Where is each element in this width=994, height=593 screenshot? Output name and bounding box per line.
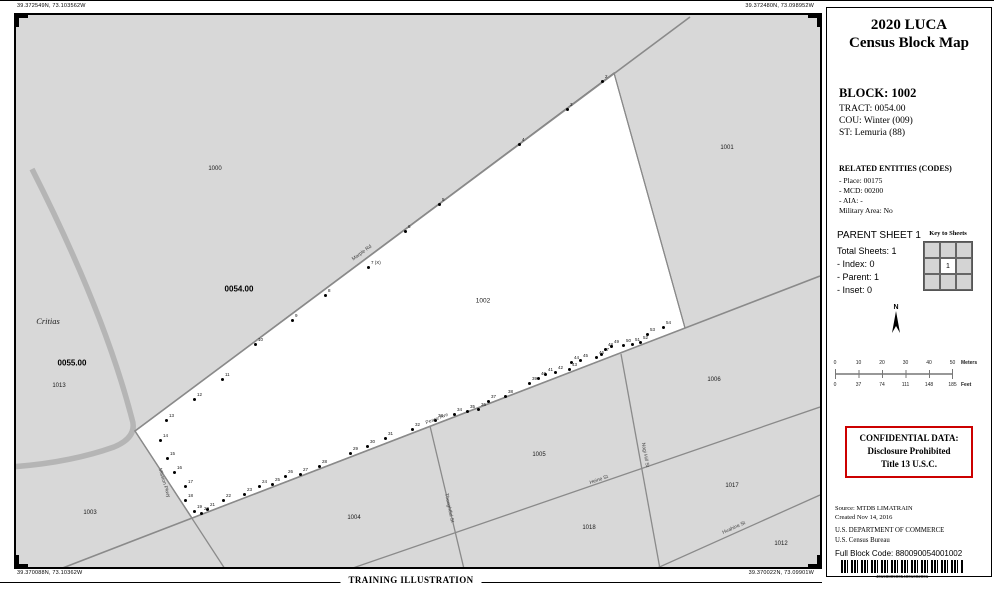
map-spot-label-38: 38 <box>508 389 513 394</box>
critias-stream <box>16 169 133 467</box>
map-spot-dot-31 <box>384 437 387 440</box>
map-spot-label-15: 15 <box>170 451 175 456</box>
map-spot-label-13: 13 <box>169 413 174 418</box>
block-label-1001: 1001 <box>720 145 733 151</box>
scale-tick-label: 20 <box>879 360 885 366</box>
department-line: U.S. DEPARTMENT OF COMMERCE <box>835 526 944 536</box>
map-spot-dot-45 <box>579 359 582 362</box>
map-spot-dot-14 <box>159 439 162 442</box>
sheet-count-item: - Parent: 1 <box>837 271 897 284</box>
related-entity-item: Military Area: No <box>839 206 893 216</box>
key-to-sheets-label: Key to Sheets <box>915 230 981 237</box>
map-spot-label-30: 30 <box>370 439 375 444</box>
block-label-1017: 1017 <box>725 483 738 489</box>
map-spot-dot-46 <box>595 356 598 359</box>
map-spot-label-28: 28 <box>322 459 327 464</box>
map-spot-dot-7 <box>367 266 370 269</box>
map-spot-label-11: 11 <box>225 372 230 377</box>
map-spot-label-43: 43 <box>572 362 577 367</box>
map-spot-label-41: 41 <box>548 367 553 372</box>
map-spot-dot-29 <box>349 452 352 455</box>
nagi-hill-st-line <box>621 354 660 567</box>
map-spot-dot-53 <box>646 333 649 336</box>
map-spot-label-10: 10 <box>258 337 263 342</box>
state-line: ST: Lemuria (88) <box>839 128 905 138</box>
map-spot-dot-5 <box>438 203 441 206</box>
map-spot-label-3: 3 <box>570 102 573 107</box>
scale-tick-label: 0 <box>834 382 837 388</box>
map-spot-dot-26 <box>284 475 287 478</box>
key-cell <box>924 258 940 274</box>
key-cell <box>956 274 972 290</box>
map-spot-label-50: 50 <box>626 338 631 343</box>
map-spot-label-36: 36 <box>481 402 486 407</box>
scale-meters-unit: Meters <box>961 360 977 366</box>
block-heading: BLOCK: 1002 <box>839 86 916 101</box>
north-label: N <box>882 304 910 311</box>
map-spot-label-24: 24 <box>262 479 267 484</box>
map-spot-label-8: 8 <box>328 288 331 293</box>
map-spot-dot-32 <box>411 428 414 431</box>
map-spot-dot-33 <box>434 419 437 422</box>
map-spot-label-9: 9 <box>295 313 298 318</box>
map-spot-dot-23 <box>243 493 246 496</box>
map-spot-dot-38 <box>504 395 507 398</box>
scale-tick-label: 111 <box>902 382 910 388</box>
sheet-count-item: - Index: 0 <box>837 258 897 271</box>
map-spot-label-2: 2 <box>605 74 608 79</box>
related-entity-item: - MCD: 00200 <box>839 186 893 196</box>
map-spot-dot-8 <box>324 294 327 297</box>
coordinate-bottom-left: 39.370088N, 73.10362W <box>17 570 82 576</box>
map-spot-dot-51 <box>631 343 634 346</box>
map-spot-dot-24 <box>258 485 261 488</box>
barcode <box>841 560 963 573</box>
key-cell <box>956 242 972 258</box>
map-spot-dot-6 <box>404 230 407 233</box>
related-entities-heading: RELATED ENTITIES (CODES) <box>839 164 952 173</box>
map-spot-dot-34 <box>453 413 456 416</box>
map-spot-dot-18 <box>184 499 187 502</box>
map-spot-label-33: 33 <box>438 413 443 418</box>
key-cell <box>940 274 956 290</box>
coordinate-top-right: 39.372480N, 73.098952W <box>745 3 814 9</box>
north-arrow: N <box>882 304 910 335</box>
map-spot-label-42: 42 <box>558 365 563 370</box>
north-arrow-icon <box>889 311 903 335</box>
scale-tick-label: 40 <box>926 360 932 366</box>
block-label-1003: 1003 <box>83 510 96 516</box>
map-canvas: 100010010054.001002Critias0055.001013100… <box>14 13 822 569</box>
map-spot-dot-2 <box>601 80 604 83</box>
county-line: COU: Winter (009) <box>839 116 913 126</box>
coordinate-bottom-right: 39.370022N, 73.09901W <box>749 570 814 576</box>
scale-tick-label: 0 <box>834 360 837 366</box>
map-spot-label-52: 52 <box>643 335 648 340</box>
block-label-1018: 1018 <box>582 525 595 531</box>
department-line: U.S. Census Bureau <box>835 536 944 546</box>
map-spot-dot-20 <box>200 512 203 515</box>
map-spot-label-27: 27 <box>303 467 308 472</box>
map-spot-dot-12 <box>193 398 196 401</box>
key-cell-current-sheet: 1 <box>940 258 956 274</box>
frame-bracket-icon <box>16 15 28 27</box>
map-spot-dot-50 <box>622 344 625 347</box>
scale-ticks <box>835 368 987 380</box>
source-line: Created Nov 14, 2016 <box>835 513 913 522</box>
map-geometry <box>16 15 820 567</box>
map-title: 2020 LUCA Census Block Map <box>827 16 991 53</box>
map-spot-dot-27 <box>299 473 302 476</box>
block-label-1006: 1006 <box>707 377 720 383</box>
map-spot-dot-54 <box>662 326 665 329</box>
block-label-1000: 1000 <box>208 166 221 172</box>
frame-bracket-icon <box>808 555 820 567</box>
frame-bracket-icon <box>808 15 820 27</box>
map-spot-label-34: 34 <box>457 407 462 412</box>
map-spot-dot-22 <box>222 499 225 502</box>
sheet-count-item: - Inset: 0 <box>837 284 897 297</box>
block-label-1005: 1005 <box>532 452 545 458</box>
confidential-line: Disclosure Prohibited <box>847 445 971 458</box>
map-spot-label-25: 25 <box>275 477 280 482</box>
scale-feet-unit: Feet <box>961 382 971 388</box>
scale-tick-label: 30 <box>903 360 909 366</box>
map-title-line2: Census Block Map <box>827 34 991 52</box>
key-cell <box>924 242 940 258</box>
census-block-map-page: 39.372549N, 73.103562W 39.372480N, 73.09… <box>0 0 994 593</box>
map-spot-dot-42 <box>554 371 557 374</box>
map-title-line1: 2020 LUCA <box>827 16 991 34</box>
key-to-sheets-grid: 1 <box>923 241 973 291</box>
related-entities-list: - Place: 00175- MCD: 00200- AIA: -Milita… <box>839 176 893 216</box>
map-spot-dot-10 <box>254 343 257 346</box>
map-spot-dot-52 <box>639 341 642 344</box>
block-label-1002: 1002 <box>476 298 490 305</box>
map-spot-label-26: 26 <box>288 469 293 474</box>
map-spot-label-53: 53 <box>650 327 655 332</box>
map-spot-label-6: 6 <box>408 224 411 229</box>
map-spot-dot-43 <box>568 368 571 371</box>
map-spot-dot-44 <box>570 361 573 364</box>
coordinate-top-left: 39.372549N, 73.103562W <box>17 3 86 9</box>
map-spot-dot-35 <box>466 410 469 413</box>
map-spot-dot-13 <box>165 419 168 422</box>
related-entity-item: - Place: 00175 <box>839 176 893 186</box>
confidential-line: CONFIDENTIAL DATA: <box>847 432 971 445</box>
water-label-critias: Critias <box>36 316 60 326</box>
map-spot-label-7: 7 (X) <box>371 260 381 265</box>
scale-tick-label: 185 <box>948 382 956 388</box>
map-spot-dot-41 <box>544 373 547 376</box>
tract-line: TRACT: 0054.00 <box>839 104 906 114</box>
map-spot-label-17: 17 <box>188 479 193 484</box>
map-spot-dot-30 <box>366 445 369 448</box>
key-cell <box>956 258 972 274</box>
map-spot-dot-28 <box>318 465 321 468</box>
related-entity-item: - AIA: - <box>839 196 893 206</box>
map-spot-dot-49 <box>610 345 613 348</box>
source-lines: Source: MTDB LIMATRAINCreated Nov 14, 20… <box>835 504 913 522</box>
map-spot-dot-9 <box>291 319 294 322</box>
training-illustration-label: TRAINING ILLUSTRATION <box>340 575 481 585</box>
map-spot-dot-39 <box>528 382 531 385</box>
map-spot-label-29: 29 <box>353 446 358 451</box>
scale-tick-label: 148 <box>925 382 933 388</box>
key-cell <box>924 274 940 290</box>
parent-sheet-heading: PARENT SHEET 1 <box>837 230 921 241</box>
map-spot-label-45: 45 <box>583 353 588 358</box>
sheet-counts-list: Total Sheets: 1- Index: 0- Parent: 1- In… <box>837 245 897 297</box>
source-line: Source: MTDB LIMATRAIN <box>835 504 913 513</box>
department-lines: U.S. DEPARTMENT OF COMMERCEU.S. Census B… <box>835 526 944 546</box>
map-spot-label-21: 21 <box>210 502 215 507</box>
map-spot-dot-3 <box>566 108 569 111</box>
block-label-1004: 1004 <box>347 515 360 521</box>
confidential-line: Title 13 U.S.C. <box>847 458 971 471</box>
map-spot-label-31: 31 <box>388 431 393 436</box>
block-label-0055-00: 0055.00 <box>58 359 87 368</box>
map-spot-dot-36 <box>477 408 480 411</box>
map-spot-label-19: 19 <box>197 504 202 509</box>
map-spot-label-35: 35 <box>470 404 475 409</box>
map-spot-label-12: 12 <box>197 392 202 397</box>
map-spot-label-4: 4 <box>522 137 525 142</box>
map-spot-label-22: 22 <box>226 493 231 498</box>
block-label-1013: 1013 <box>52 383 65 389</box>
map-spot-dot-19 <box>193 510 196 513</box>
scale-tick-label: 50 <box>950 360 956 366</box>
map-spot-dot-47 <box>600 353 603 356</box>
barcode-number: 401988090054001002001 <box>841 574 963 579</box>
map-spot-label-18: 18 <box>188 493 193 498</box>
confidential-notice: CONFIDENTIAL DATA:Disclosure ProhibitedT… <box>845 426 973 478</box>
scale-tick-label: 37 <box>856 382 862 388</box>
key-cell <box>940 242 956 258</box>
map-spot-dot-15 <box>166 457 169 460</box>
map-spot-dot-17 <box>184 485 187 488</box>
full-block-code: Full Block Code: 880090054001002 <box>835 549 962 558</box>
map-spot-dot-21 <box>206 508 209 511</box>
map-spot-label-54: 54 <box>666 320 671 325</box>
frame-bracket-icon <box>16 555 28 567</box>
block-label-1012: 1012 <box>774 541 787 547</box>
heine-st-line <box>350 407 820 567</box>
block-1002-polygon <box>135 73 685 518</box>
map-spot-label-32: 32 <box>415 422 420 427</box>
map-spot-dot-48 <box>604 348 607 351</box>
map-spot-label-16: 16 <box>177 465 182 470</box>
map-spot-label-23: 23 <box>247 487 252 492</box>
scale-bar: 01020304050Meters 03774111148185Feet <box>835 360 987 394</box>
map-spot-dot-16 <box>173 471 176 474</box>
scale-tick-label: 74 <box>879 382 885 388</box>
map-spot-label-49: 49 <box>614 339 619 344</box>
huahine-st-line <box>655 495 820 567</box>
scale-tick-label: 10 <box>856 360 862 366</box>
block-label-0054-00: 0054.00 <box>225 285 254 294</box>
map-spot-dot-25 <box>271 483 274 486</box>
map-spot-dot-40 <box>537 377 540 380</box>
map-spot-label-14: 14 <box>163 433 168 438</box>
map-legend-sidebar: 2020 LUCA Census Block Map BLOCK: 1002 T… <box>826 7 992 577</box>
map-spot-dot-37 <box>487 400 490 403</box>
map-spot-dot-11 <box>221 378 224 381</box>
map-spot-label-5: 5 <box>442 197 445 202</box>
sheet-count-item: Total Sheets: 1 <box>837 245 897 258</box>
map-spot-label-37: 37 <box>491 394 496 399</box>
map-spot-dot-4 <box>518 143 521 146</box>
